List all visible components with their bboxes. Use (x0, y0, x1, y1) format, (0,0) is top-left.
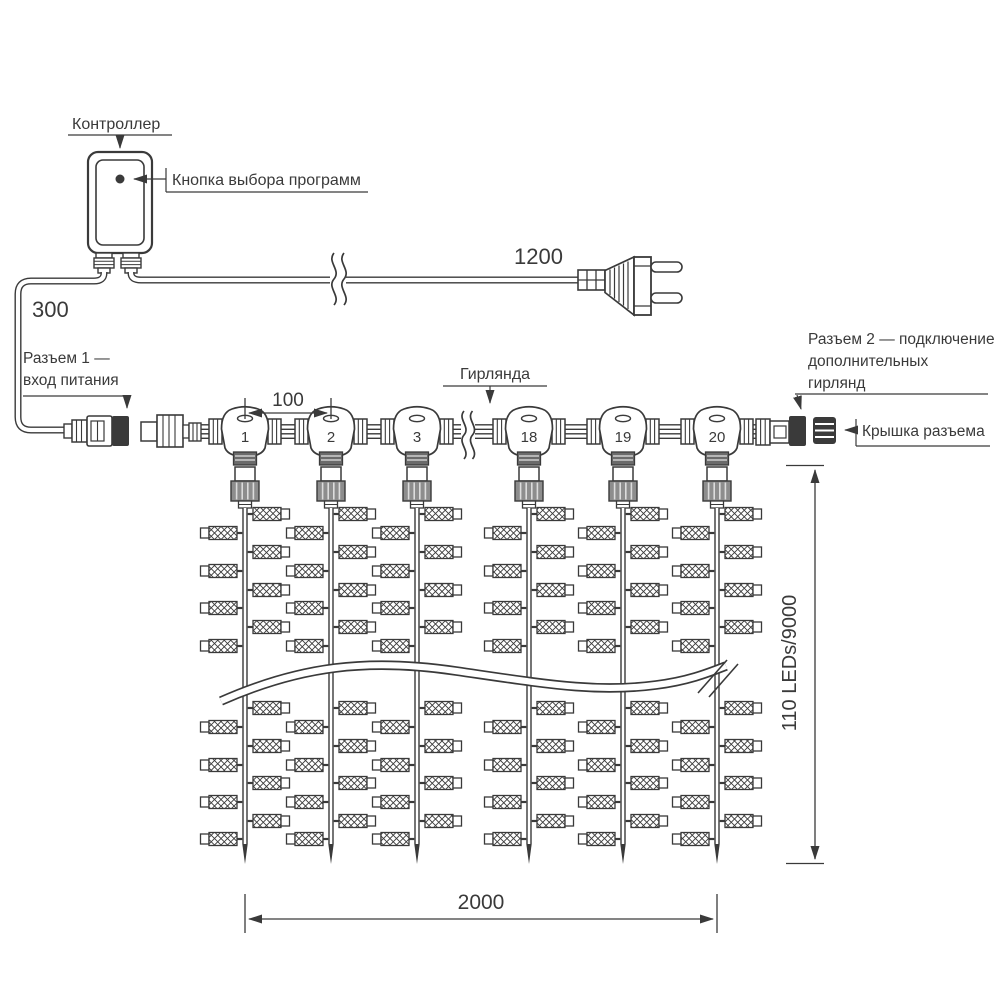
label-connector1-line2: вход питания (23, 372, 119, 389)
led-lamp (373, 759, 415, 772)
led-lamp (579, 796, 621, 809)
led-lamp (720, 777, 762, 790)
dimension-height-label: 110 LEDs/9000 (779, 595, 801, 731)
cable-gland (121, 253, 141, 273)
led-lamp (248, 546, 290, 559)
led-lamp (334, 546, 376, 559)
led-lamp (420, 702, 462, 715)
led-lamp (626, 777, 668, 790)
led-lamp (532, 740, 574, 753)
led-lamp (420, 815, 462, 828)
garland-break-symbol (462, 411, 475, 459)
t-connector: 20 (681, 407, 753, 465)
program-button-dot (116, 175, 125, 184)
led-lamp (532, 508, 574, 521)
led-lamp (485, 833, 527, 846)
led-lamp (287, 833, 329, 846)
t-connector: 3 (381, 407, 453, 465)
plug-pin (651, 262, 682, 272)
drop-string (579, 467, 668, 864)
led-lamp (485, 640, 527, 653)
led-lamp (334, 740, 376, 753)
led-lamp (248, 815, 290, 828)
led-lamp (579, 759, 621, 772)
led-lamp (673, 721, 715, 734)
led-lamp (373, 565, 415, 578)
t-connector-number: 1 (241, 429, 249, 446)
controller-box-inner (96, 160, 144, 245)
drop-cable-tip (242, 844, 247, 864)
led-lamp (485, 759, 527, 772)
connector-1-male (64, 416, 129, 446)
led-lamp (485, 602, 527, 615)
led-lamp (248, 702, 290, 715)
led-lamp (334, 584, 376, 597)
led-lamp (334, 621, 376, 634)
led-lamp (201, 527, 243, 540)
led-lamp (673, 796, 715, 809)
led-lamp (720, 815, 762, 828)
led-lamp (201, 759, 243, 772)
led-lamp (626, 815, 668, 828)
power-cable (131, 253, 578, 305)
led-lamp (201, 721, 243, 734)
led-lamp (673, 833, 715, 846)
cable-break-symbol (332, 253, 346, 305)
led-lamp (373, 833, 415, 846)
led-lamp (248, 508, 290, 521)
led-lamp (248, 584, 290, 597)
led-lamp (579, 640, 621, 653)
t-connector-number: 18 (521, 429, 538, 446)
led-lamp (532, 621, 574, 634)
led-lamp (720, 740, 762, 753)
t-connectors: 123181920 (209, 407, 753, 465)
led-lamp (673, 527, 715, 540)
drop-cable-tip (328, 844, 333, 864)
t-connector: 18 (493, 407, 565, 465)
led-lamp (720, 584, 762, 597)
led-lamp (579, 527, 621, 540)
dimension-curtain-width: 2000 (245, 891, 717, 933)
led-lamp (720, 702, 762, 715)
led-lamp (287, 759, 329, 772)
led-lamp (201, 796, 243, 809)
loose-cable-wave (221, 660, 738, 701)
led-lamp (287, 602, 329, 615)
led-lamp (201, 602, 243, 615)
led-lamp (248, 740, 290, 753)
led-lamp (532, 815, 574, 828)
drop-cable-tip (414, 844, 419, 864)
led-lamp (673, 759, 715, 772)
label-garland: Гирлянда (460, 366, 530, 383)
t-connector-number: 20 (709, 429, 726, 446)
led-lamp (720, 621, 762, 634)
led-lamp (532, 777, 574, 790)
led-lamp (334, 702, 376, 715)
led-lamp (420, 546, 462, 559)
callout-garland: Гирлянда (443, 366, 547, 403)
dimension-100-label: 100 (272, 390, 304, 411)
led-lamp (201, 833, 243, 846)
t-connector: 19 (587, 407, 659, 465)
led-lamp (579, 602, 621, 615)
controller (88, 152, 152, 273)
led-lamp (626, 546, 668, 559)
led-lamp (287, 640, 329, 653)
led-lamp (532, 584, 574, 597)
led-lamp (626, 740, 668, 753)
led-lamp (673, 565, 715, 578)
dimension-300-label: 300 (32, 297, 69, 322)
led-lamp (373, 602, 415, 615)
led-lamp (334, 777, 376, 790)
label-connector1-line1: Разъем 1 — (23, 350, 110, 367)
label-connector-cap: Крышка разъема (862, 423, 985, 440)
led-drops (201, 467, 762, 864)
led-lamp (248, 621, 290, 634)
dimension-curtain-height: 110 LEDs/9000 (779, 466, 824, 864)
t-connector-number: 3 (413, 429, 421, 446)
led-lamp (420, 621, 462, 634)
led-lamp (287, 796, 329, 809)
garland-main-cable (201, 425, 756, 439)
led-lamp (373, 640, 415, 653)
callout-program-button: Кнопка выбора программ (134, 168, 368, 192)
drop-cable-tip (620, 844, 625, 864)
dimension-2000-label: 2000 (458, 891, 505, 914)
callout-connector-cap: Крышка разъема (845, 419, 990, 446)
led-lamp (373, 721, 415, 734)
label-connector2-line2: дополнительных (808, 353, 928, 370)
led-lamp (720, 508, 762, 521)
garland-curtain-wiring-diagram: 123181920 100 2000 110 LEDs/9000 300 120… (0, 0, 1000, 1000)
cable-gland (94, 253, 114, 273)
led-lamp (287, 527, 329, 540)
callout-connector-2: Разъем 2 — подключение дополнительных ги… (795, 331, 995, 409)
drop-cable-tip (526, 844, 531, 864)
led-lamp (626, 584, 668, 597)
connector-2-end (756, 416, 806, 446)
plug-pin (651, 293, 682, 303)
led-lamp (720, 546, 762, 559)
power-plug (578, 257, 682, 315)
led-lamp (373, 527, 415, 540)
label-connector2-line1: Разъем 2 — подключение (808, 331, 995, 348)
led-lamp (579, 721, 621, 734)
led-lamp (373, 796, 415, 809)
led-lamp (287, 721, 329, 734)
led-lamp (485, 527, 527, 540)
led-lamp (420, 740, 462, 753)
led-lamp (485, 565, 527, 578)
callout-controller: Контроллер (68, 116, 172, 148)
led-lamp (532, 546, 574, 559)
drop-string (201, 467, 290, 864)
led-lamp (579, 565, 621, 578)
led-lamp (626, 508, 668, 521)
led-lamp (626, 702, 668, 715)
label-program-button: Кнопка выбора программ (172, 172, 361, 189)
led-lamp (673, 602, 715, 615)
led-lamp (201, 640, 243, 653)
led-lamp (334, 508, 376, 521)
t-connector-number: 2 (327, 429, 335, 446)
connector-cap (813, 417, 836, 444)
t-connector-number: 19 (615, 429, 632, 446)
led-lamp (248, 777, 290, 790)
dimension-1200-label: 1200 (514, 244, 563, 269)
led-lamp (420, 508, 462, 521)
led-lamp (626, 621, 668, 634)
led-lamp (485, 796, 527, 809)
led-lamp (201, 565, 243, 578)
led-lamp (334, 815, 376, 828)
led-lamp (420, 777, 462, 790)
led-lamp (673, 640, 715, 653)
led-lamp (485, 721, 527, 734)
led-lamp (420, 584, 462, 597)
led-lamp (532, 702, 574, 715)
label-connector2-line3: гирлянд (808, 375, 865, 392)
led-lamp (579, 833, 621, 846)
callout-connector-1: Разъем 1 — вход питания (23, 350, 127, 408)
connector-2-socket (789, 416, 806, 446)
drop-string (485, 467, 574, 864)
drop-cable-tip (714, 844, 719, 864)
label-controller: Контроллер (72, 116, 160, 133)
led-lamp (287, 565, 329, 578)
connector-1-female (141, 415, 201, 447)
